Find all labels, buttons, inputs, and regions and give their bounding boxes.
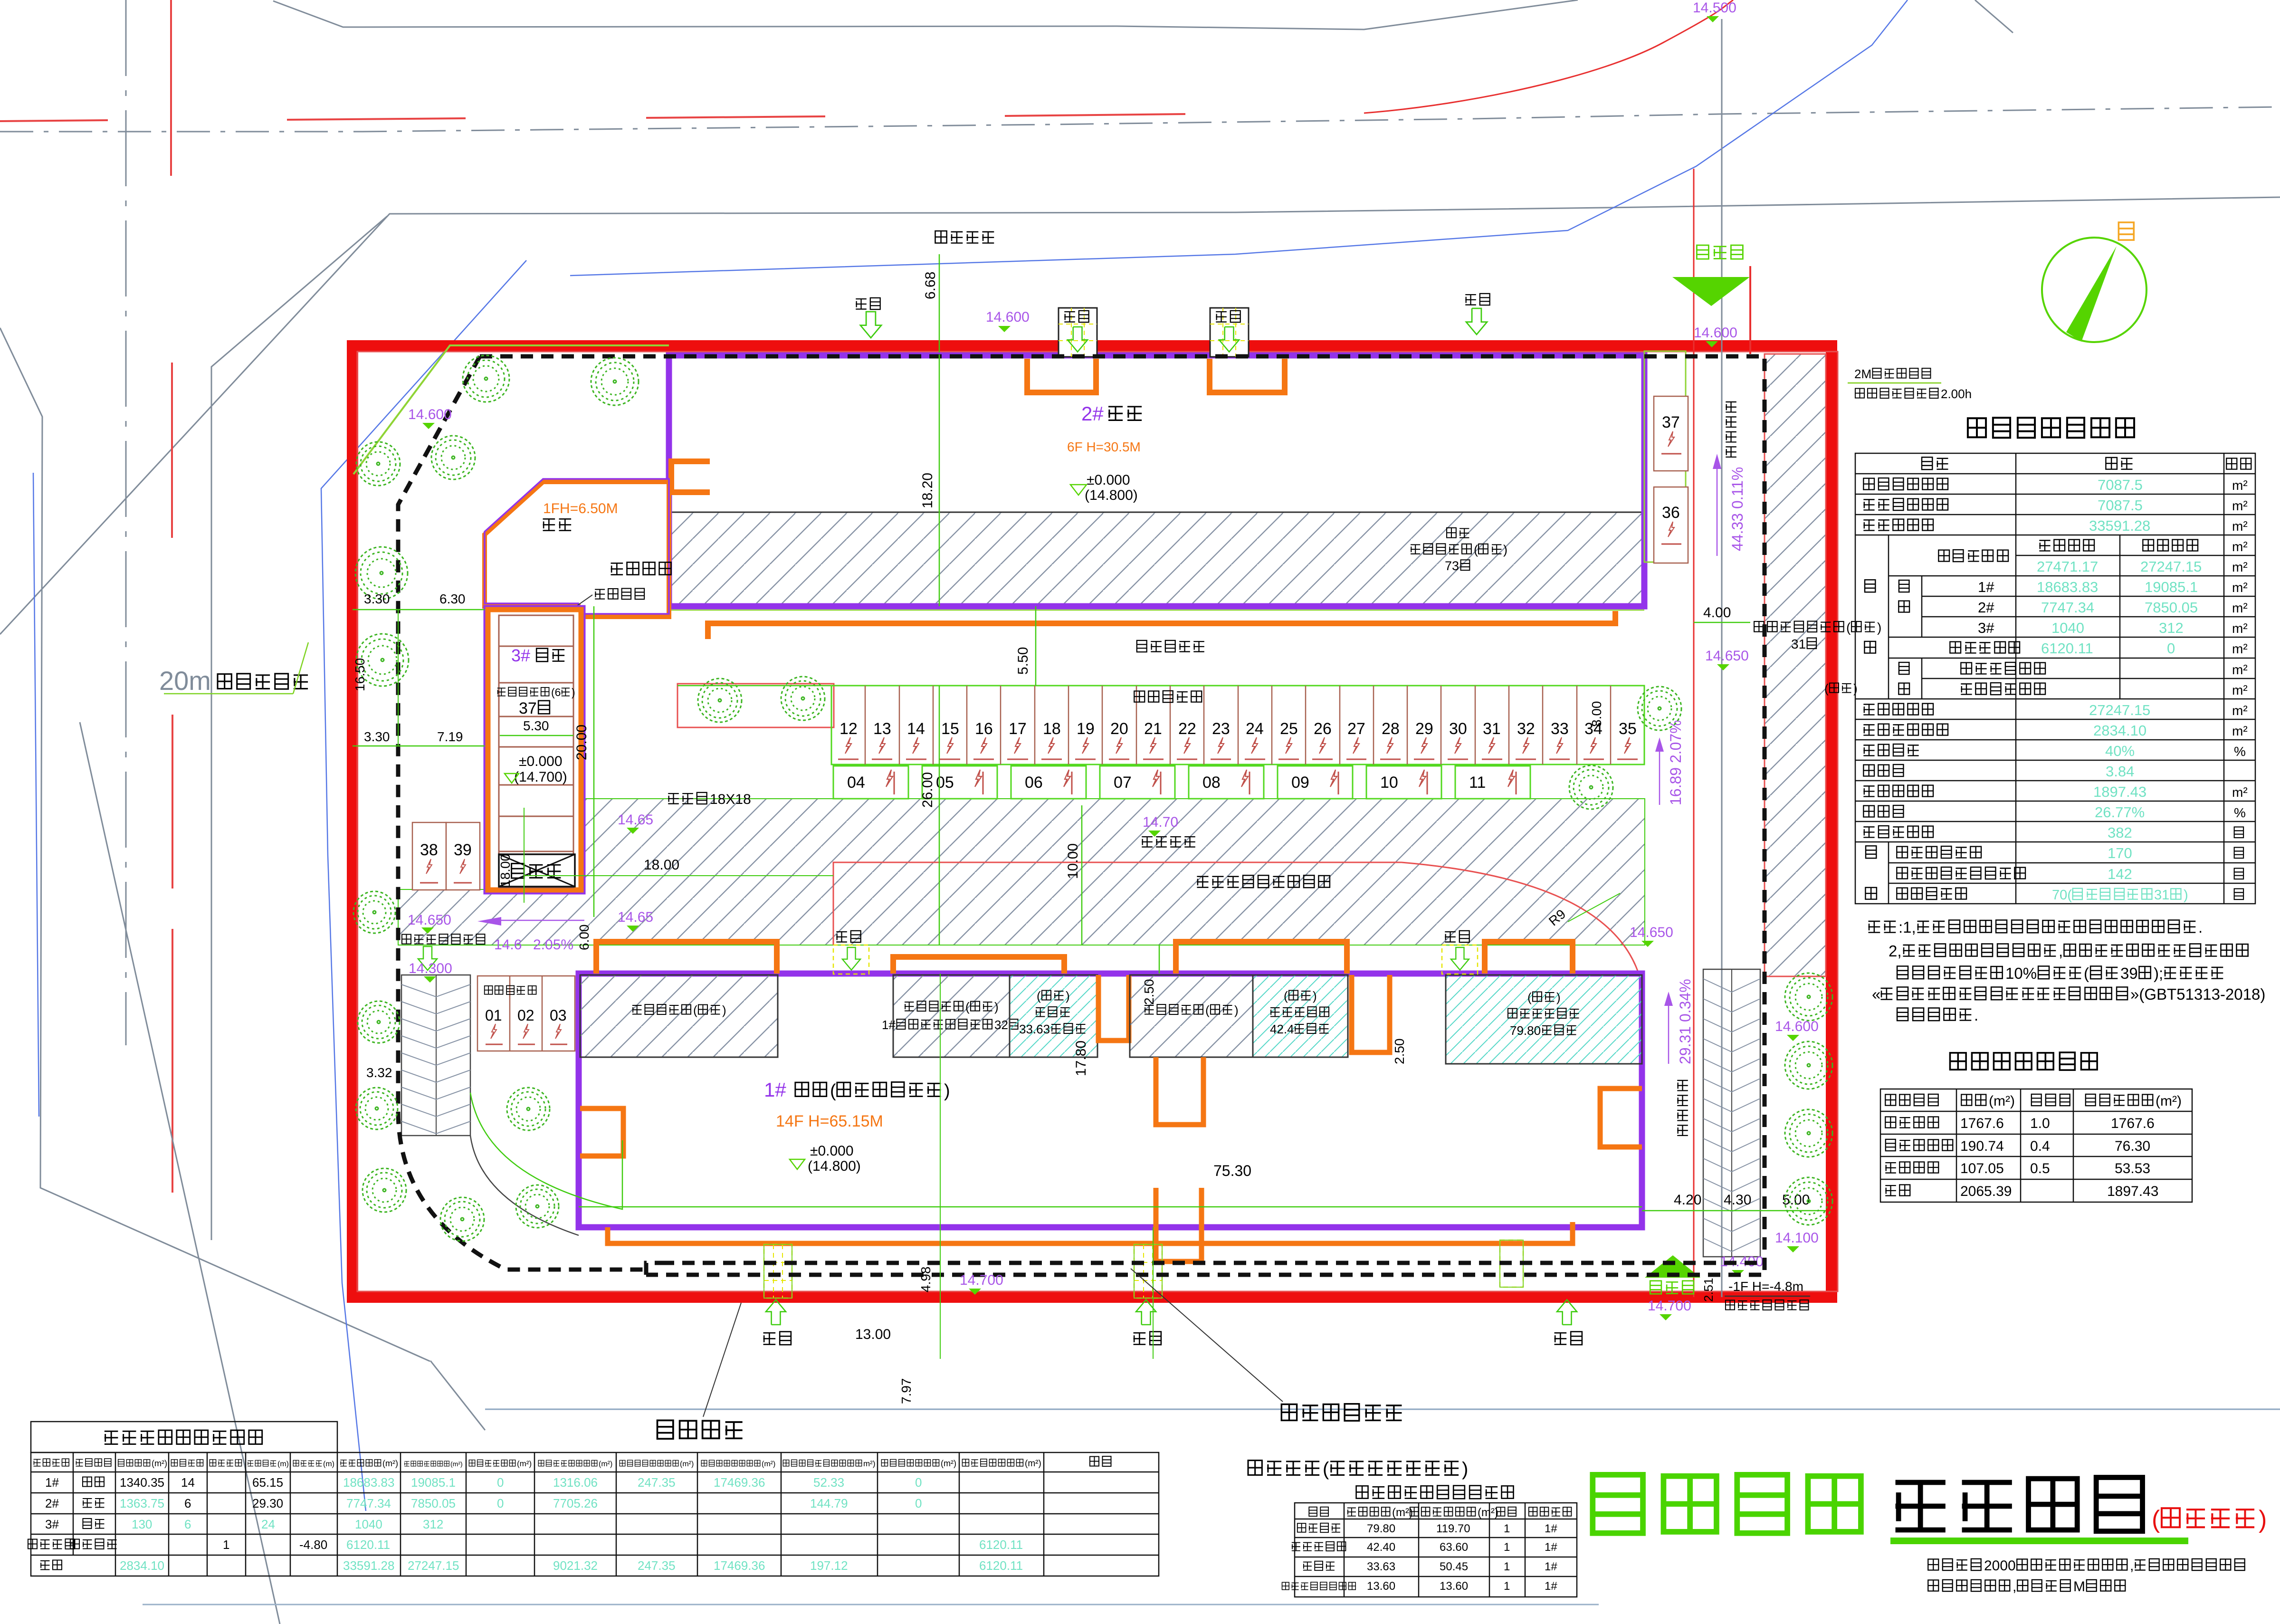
svg-text:35: 35: [1619, 720, 1637, 738]
svg-text:197.12: 197.12: [810, 1558, 848, 1573]
svg-text:33591.28: 33591.28: [343, 1558, 394, 1573]
svg-text:1#: 1#: [1545, 1541, 1557, 1554]
svg-text:07: 07: [1114, 774, 1132, 792]
svg-text:): ): [2259, 1506, 2267, 1533]
svg-text:03: 03: [550, 1007, 567, 1024]
svg-text:2065.39: 2065.39: [1960, 1184, 2012, 1199]
svg-text:76.30: 76.30: [2115, 1138, 2150, 1154]
svg-text:70(: 70(: [2052, 888, 2072, 903]
svg-text:6120.11: 6120.11: [979, 1538, 1023, 1552]
svg-text:m²: m²: [2232, 601, 2248, 615]
svg-text:6.68: 6.68: [923, 272, 938, 299]
svg-text:±0.000: ±0.000: [1087, 472, 1130, 488]
svg-text:14.6: 14.6: [494, 937, 522, 953]
svg-text:m²: m²: [2232, 621, 2248, 636]
svg-text:7.97: 7.97: [899, 1378, 914, 1404]
svg-text:6120.11: 6120.11: [979, 1558, 1023, 1573]
svg-text:«: «: [1872, 985, 1880, 1003]
svg-text:21: 21: [1144, 720, 1162, 738]
svg-text:7705.26: 7705.26: [553, 1496, 598, 1510]
svg-text:4.98: 4.98: [918, 1267, 933, 1293]
svg-text:26: 26: [1314, 720, 1332, 738]
svg-text:1767.6: 1767.6: [1960, 1116, 2004, 1131]
svg-text:33: 33: [1551, 720, 1569, 738]
svg-text:7087.5: 7087.5: [2098, 477, 2143, 493]
svg-text:17469.36: 17469.36: [714, 1558, 765, 1573]
svg-text:06: 06: [1025, 774, 1043, 792]
svg-text:6: 6: [184, 1517, 191, 1531]
svg-text:18: 18: [1043, 720, 1061, 738]
svg-text:18X18: 18X18: [710, 792, 751, 807]
svg-text:(: (: [1205, 1003, 1210, 1017]
svg-text:): ): [994, 1000, 999, 1014]
svg-text:1: 1: [223, 1538, 229, 1552]
svg-text:(14.800): (14.800): [808, 1158, 861, 1174]
svg-text:): ): [1503, 543, 1507, 557]
svg-text:(: (: [2152, 1506, 2160, 1533]
svg-text:1: 1: [1504, 1541, 1510, 1554]
svg-text:0: 0: [497, 1496, 504, 1510]
svg-text:»(GBT51313-2018): »(GBT51313-2018): [2130, 985, 2265, 1003]
svg-text:65.15: 65.15: [252, 1475, 283, 1490]
svg-text:8.00: 8.00: [1589, 701, 1604, 727]
svg-text:190.74: 190.74: [1960, 1138, 2004, 1154]
svg-text:39: 39: [454, 841, 472, 859]
svg-text:m²: m²: [2232, 785, 2248, 800]
svg-text:4.30: 4.30: [1724, 1192, 1751, 1208]
svg-text:(: (: [1846, 620, 1851, 635]
svg-text:4.00: 4.00: [1703, 605, 1731, 621]
svg-text:2M: 2M: [1854, 367, 1871, 381]
svg-text:): ): [1462, 1459, 1468, 1480]
svg-text:(m²): (m²): [1478, 1506, 1498, 1519]
svg-text:m²: m²: [2232, 560, 2248, 574]
svg-text:28: 28: [1382, 720, 1400, 738]
svg-text:1340.35: 1340.35: [120, 1475, 164, 1490]
svg-text:42.4: 42.4: [1270, 1022, 1294, 1036]
svg-text:144.79: 144.79: [810, 1496, 848, 1510]
svg-text:9021.32: 9021.32: [553, 1558, 598, 1573]
svg-text:36: 36: [1662, 504, 1680, 522]
svg-text:39: 39: [2120, 965, 2138, 982]
svg-text:18.00: 18.00: [644, 857, 679, 873]
svg-text:40%: 40%: [2105, 743, 2135, 759]
svg-text::1,: :1,: [1898, 918, 1916, 936]
svg-text:5.50: 5.50: [1015, 647, 1031, 675]
svg-text:3.30: 3.30: [364, 592, 390, 606]
svg-text:1: 1: [1504, 1522, 1510, 1535]
svg-text:%: %: [2234, 805, 2246, 820]
svg-text:1#: 1#: [882, 1018, 896, 1032]
svg-text:(: (: [1037, 989, 1041, 1003]
svg-text:79.80: 79.80: [1510, 1023, 1541, 1038]
svg-text:14.600: 14.600: [986, 309, 1030, 325]
svg-text:(m²): (m²): [762, 1460, 775, 1468]
svg-text:7850.05: 7850.05: [411, 1496, 456, 1510]
svg-text:32: 32: [1517, 720, 1535, 738]
svg-text:17469.36: 17469.36: [714, 1475, 765, 1490]
svg-text:(: (: [1824, 681, 1829, 696]
svg-text:1040: 1040: [355, 1517, 382, 1531]
svg-text:22: 22: [1178, 720, 1196, 738]
svg-text:(14.700): (14.700): [514, 769, 567, 785]
svg-text:(m): (m): [323, 1460, 334, 1468]
svg-text:0: 0: [497, 1475, 504, 1490]
svg-text:2000: 2000: [1984, 1558, 2016, 1574]
svg-text:13.00: 13.00: [855, 1327, 891, 1342]
svg-text:): ): [1877, 620, 1881, 635]
svg-text:-1F H=-4.8m: -1F H=-4.8m: [1728, 1279, 1803, 1294]
svg-text:5.30: 5.30: [523, 718, 549, 733]
svg-text:14.600: 14.600: [408, 407, 452, 422]
svg-text:08: 08: [1202, 774, 1221, 792]
svg-text:24: 24: [1246, 720, 1264, 738]
svg-text:1: 1: [1504, 1580, 1510, 1593]
svg-text:(: (: [1284, 989, 1288, 1003]
svg-text:20.00: 20.00: [574, 725, 590, 760]
svg-text:14.65: 14.65: [618, 909, 653, 925]
svg-text:1#: 1#: [764, 1079, 786, 1101]
svg-text:2#: 2#: [45, 1496, 59, 1510]
svg-text:14F H=65.15M: 14F H=65.15M: [776, 1112, 883, 1130]
svg-text:17.80: 17.80: [1073, 1041, 1089, 1076]
svg-text:26.77%: 26.77%: [2095, 804, 2145, 821]
svg-text:16.50: 16.50: [353, 658, 367, 691]
svg-text:14: 14: [907, 720, 925, 738]
svg-text:(6: (6: [551, 686, 561, 698]
svg-text:18.00: 18.00: [498, 854, 513, 887]
svg-text:3.84: 3.84: [2106, 763, 2134, 780]
svg-text:52.33: 52.33: [813, 1475, 844, 1490]
svg-text:,: ,: [2013, 1579, 2016, 1595]
svg-text:±0.000: ±0.000: [810, 1143, 854, 1159]
svg-text:29.31 0.34%: 29.31 0.34%: [1677, 979, 1694, 1064]
svg-text:6.30: 6.30: [439, 592, 466, 606]
svg-text:(m): (m): [277, 1460, 289, 1468]
svg-text:14.700: 14.700: [960, 1272, 1003, 1288]
svg-text:2#: 2#: [1081, 402, 1104, 425]
svg-text:14.100: 14.100: [1775, 1230, 1819, 1246]
svg-text:37: 37: [519, 699, 537, 717]
svg-text:50.45: 50.45: [1440, 1560, 1468, 1573]
svg-text:2834.10: 2834.10: [120, 1558, 164, 1573]
svg-text:7.19: 7.19: [437, 729, 463, 744]
svg-text:0: 0: [915, 1496, 922, 1510]
svg-text:(m²): (m²): [941, 1459, 956, 1468]
svg-text:18683.83: 18683.83: [2037, 579, 2098, 595]
svg-text:6120.11: 6120.11: [2041, 640, 2093, 657]
svg-text:73: 73: [1445, 559, 1459, 573]
svg-text:14.650: 14.650: [1705, 648, 1749, 664]
svg-text:4.20: 4.20: [1674, 1192, 1701, 1208]
svg-text:): ): [1313, 989, 1317, 1003]
svg-text:m²: m²: [2232, 641, 2248, 656]
svg-text:(: (: [693, 1003, 697, 1017]
svg-text:(: (: [1527, 990, 1532, 1004]
svg-text:(14.800): (14.800): [1085, 487, 1138, 503]
svg-text:2,: 2,: [1889, 942, 1902, 960]
svg-text:m²): m²): [863, 1459, 875, 1468]
svg-text:1#: 1#: [1545, 1580, 1557, 1593]
svg-text:1#: 1#: [1545, 1522, 1557, 1535]
svg-text:(: (: [2084, 965, 2089, 982]
svg-text:6.00: 6.00: [577, 925, 591, 951]
svg-text:24: 24: [261, 1517, 275, 1531]
svg-text:16.89 2.07%: 16.89 2.07%: [1667, 720, 1684, 805]
svg-text:(m²): (m²): [680, 1460, 694, 1468]
svg-text:312: 312: [423, 1517, 443, 1531]
svg-text:23: 23: [1212, 720, 1230, 738]
svg-text:1897.43: 1897.43: [2107, 1184, 2158, 1199]
svg-text:14: 14: [181, 1475, 195, 1490]
svg-text:): ): [1556, 990, 1561, 1004]
svg-text:1#: 1#: [1545, 1560, 1557, 1573]
svg-text:): ): [1066, 989, 1070, 1003]
svg-text:79.80: 79.80: [1367, 1522, 1395, 1535]
svg-text:10%: 10%: [2005, 965, 2037, 982]
svg-text:33.63: 33.63: [1019, 1022, 1050, 1036]
svg-text:13.60: 13.60: [1367, 1580, 1395, 1593]
svg-text:m²: m²: [2232, 478, 2248, 493]
svg-text:0.4: 0.4: [2030, 1138, 2050, 1154]
svg-text:m²: m²: [2232, 580, 2248, 595]
svg-text:M: M: [2073, 1579, 2085, 1595]
svg-text:(m²): (m²): [382, 1459, 398, 1468]
svg-text:%: %: [2234, 744, 2246, 759]
svg-text:14.700: 14.700: [1648, 1298, 1691, 1314]
svg-text:10: 10: [1380, 774, 1398, 792]
svg-text:): ): [1234, 1003, 1239, 1017]
svg-text:m²: m²: [2232, 724, 2248, 738]
svg-text:130: 130: [132, 1517, 152, 1531]
svg-text:): ): [2184, 888, 2188, 903]
svg-text:16: 16: [975, 720, 993, 738]
svg-text:29: 29: [1415, 720, 1433, 738]
svg-text:27471.17: 27471.17: [2037, 558, 2098, 575]
svg-text:6: 6: [184, 1496, 191, 1510]
svg-text:(m²): (m²): [450, 1460, 463, 1468]
svg-text:2.50: 2.50: [1392, 1039, 1407, 1065]
svg-text:1363.75: 1363.75: [120, 1496, 164, 1510]
svg-text:(: (: [1323, 1459, 1329, 1480]
svg-text:1.0: 1.0: [2030, 1116, 2050, 1131]
svg-text:1#: 1#: [1978, 579, 1994, 595]
svg-text:247.35: 247.35: [638, 1475, 676, 1490]
svg-text:0.5: 0.5: [2030, 1161, 2050, 1176]
svg-text:119.70: 119.70: [1436, 1522, 1470, 1535]
svg-text:31: 31: [2154, 888, 2169, 903]
svg-text:);: );: [2154, 965, 2163, 982]
svg-text:±0.000: ±0.000: [519, 754, 563, 769]
svg-text:33591.28: 33591.28: [2089, 517, 2150, 534]
svg-text:-4.80: -4.80: [299, 1538, 327, 1552]
svg-text:04: 04: [847, 774, 865, 792]
svg-text:14.500: 14.500: [1693, 0, 1736, 16]
svg-text:2.50: 2.50: [1142, 979, 1156, 1005]
svg-text:7747.34: 7747.34: [346, 1496, 391, 1510]
svg-text:2.05%: 2.05%: [533, 937, 573, 953]
svg-text:32: 32: [994, 1018, 1008, 1032]
svg-text:,: ,: [2059, 942, 2063, 960]
svg-text:37: 37: [1662, 413, 1680, 431]
svg-text:26.00: 26.00: [920, 772, 935, 808]
svg-text:3#: 3#: [1978, 620, 1994, 636]
svg-text:14.70: 14.70: [1143, 814, 1178, 830]
svg-text:14.650: 14.650: [408, 912, 451, 928]
svg-text:27247.15: 27247.15: [408, 1558, 459, 1573]
svg-text:53.53: 53.53: [2115, 1161, 2150, 1176]
svg-text:75.30: 75.30: [1213, 1162, 1251, 1179]
svg-text:(: (: [830, 1081, 836, 1101]
svg-text:6120.11: 6120.11: [346, 1538, 390, 1552]
svg-text:(m²): (m²): [1989, 1093, 2015, 1109]
svg-text:0: 0: [2167, 640, 2175, 657]
svg-text:1040: 1040: [2051, 620, 2084, 636]
svg-text:7087.5: 7087.5: [2098, 497, 2143, 514]
svg-text:38: 38: [420, 841, 438, 859]
svg-text:2.51: 2.51: [1701, 1278, 1716, 1302]
svg-text:14.650: 14.650: [1630, 925, 1673, 940]
svg-text:27: 27: [1347, 720, 1365, 738]
svg-text:20: 20: [1110, 720, 1128, 738]
svg-text:09: 09: [1291, 774, 1309, 792]
svg-text:29.30: 29.30: [252, 1496, 283, 1510]
svg-text:107.05: 107.05: [1960, 1161, 2004, 1176]
svg-text:19085.1: 19085.1: [2145, 579, 2198, 595]
svg-text:33.63: 33.63: [1367, 1560, 1395, 1573]
svg-text:.: .: [2198, 918, 2203, 936]
svg-text:63.60: 63.60: [1440, 1541, 1468, 1554]
svg-text:1897.43: 1897.43: [2093, 783, 2146, 800]
svg-text:(m²): (m²): [599, 1460, 612, 1468]
svg-text:27247.15: 27247.15: [2089, 702, 2150, 718]
svg-text:31: 31: [1483, 720, 1501, 738]
svg-text:382: 382: [2108, 824, 2132, 841]
svg-text:42.40: 42.40: [1367, 1541, 1395, 1554]
svg-text:6F H=30.5M: 6F H=30.5M: [1067, 439, 1141, 454]
svg-text:05: 05: [936, 774, 954, 792]
svg-text:02: 02: [517, 1007, 534, 1024]
svg-text:7747.34: 7747.34: [2041, 599, 2094, 616]
svg-text:25: 25: [1280, 720, 1298, 738]
svg-text:17: 17: [1009, 720, 1027, 738]
svg-text:3#: 3#: [511, 646, 530, 665]
svg-text:m²: m²: [2232, 662, 2248, 677]
svg-text:10.00: 10.00: [1065, 843, 1081, 879]
svg-text:m²: m²: [2232, 539, 2248, 554]
svg-text:1: 1: [1504, 1560, 1510, 1573]
svg-text:01: 01: [485, 1007, 502, 1024]
svg-text:14.300: 14.300: [409, 961, 452, 976]
svg-text:(: (: [965, 1000, 970, 1014]
svg-text:11: 11: [1469, 774, 1486, 792]
svg-text:1767.6: 1767.6: [2111, 1116, 2155, 1131]
svg-text:(: (: [1474, 543, 1478, 557]
svg-text:18683.83: 18683.83: [343, 1475, 394, 1490]
svg-text:1FH=6.50M: 1FH=6.50M: [543, 501, 618, 516]
svg-text:13.60: 13.60: [1440, 1580, 1468, 1593]
svg-text:13: 13: [873, 720, 891, 738]
svg-text:): ): [722, 1003, 726, 1017]
svg-text:12: 12: [839, 720, 858, 738]
svg-text:44.33 0.11%: 44.33 0.11%: [1729, 467, 1746, 551]
svg-text:3.30: 3.30: [364, 729, 390, 744]
svg-text:14.600: 14.600: [1694, 325, 1737, 341]
svg-text:(m²): (m²): [517, 1459, 532, 1468]
svg-text:15: 15: [941, 720, 959, 738]
svg-text:14.65: 14.65: [618, 812, 653, 828]
svg-text:m²: m²: [2232, 703, 2248, 718]
svg-text:31: 31: [1791, 637, 1806, 651]
svg-text:.: .: [1974, 1006, 1978, 1024]
svg-text:(m²): (m²): [152, 1459, 167, 1468]
svg-text:7850.05: 7850.05: [2145, 599, 2198, 616]
svg-text:170: 170: [2108, 845, 2132, 861]
svg-text:20m: 20m: [159, 666, 211, 696]
svg-text:m²: m²: [2232, 519, 2248, 534]
svg-text:142: 142: [2108, 866, 2132, 882]
svg-text:1#: 1#: [45, 1475, 59, 1490]
svg-text:(m²): (m²): [2156, 1093, 2182, 1109]
svg-text:19085.1: 19085.1: [411, 1475, 456, 1490]
svg-text:): ): [944, 1081, 950, 1101]
svg-text:): ): [572, 686, 575, 698]
svg-text:2#: 2#: [1978, 599, 1994, 616]
svg-text:2834.10: 2834.10: [2093, 722, 2146, 739]
svg-text:2.00h: 2.00h: [1941, 387, 1972, 401]
svg-text:3.32: 3.32: [366, 1065, 392, 1080]
svg-text:m²: m²: [2232, 498, 2248, 513]
svg-text:,: ,: [2130, 1558, 2134, 1574]
svg-text:(m²): (m²): [1025, 1459, 1041, 1469]
svg-text:3#: 3#: [45, 1517, 59, 1531]
svg-text:18.20: 18.20: [920, 473, 935, 508]
svg-text:247.35: 247.35: [638, 1558, 676, 1573]
svg-text:m²: m²: [2232, 683, 2248, 697]
svg-text:30: 30: [1449, 720, 1467, 738]
svg-text:312: 312: [2159, 620, 2184, 636]
svg-text:27247.15: 27247.15: [2140, 558, 2202, 575]
svg-text:19: 19: [1077, 720, 1095, 738]
svg-text:1316.06: 1316.06: [553, 1475, 598, 1490]
svg-text:0: 0: [915, 1475, 922, 1490]
